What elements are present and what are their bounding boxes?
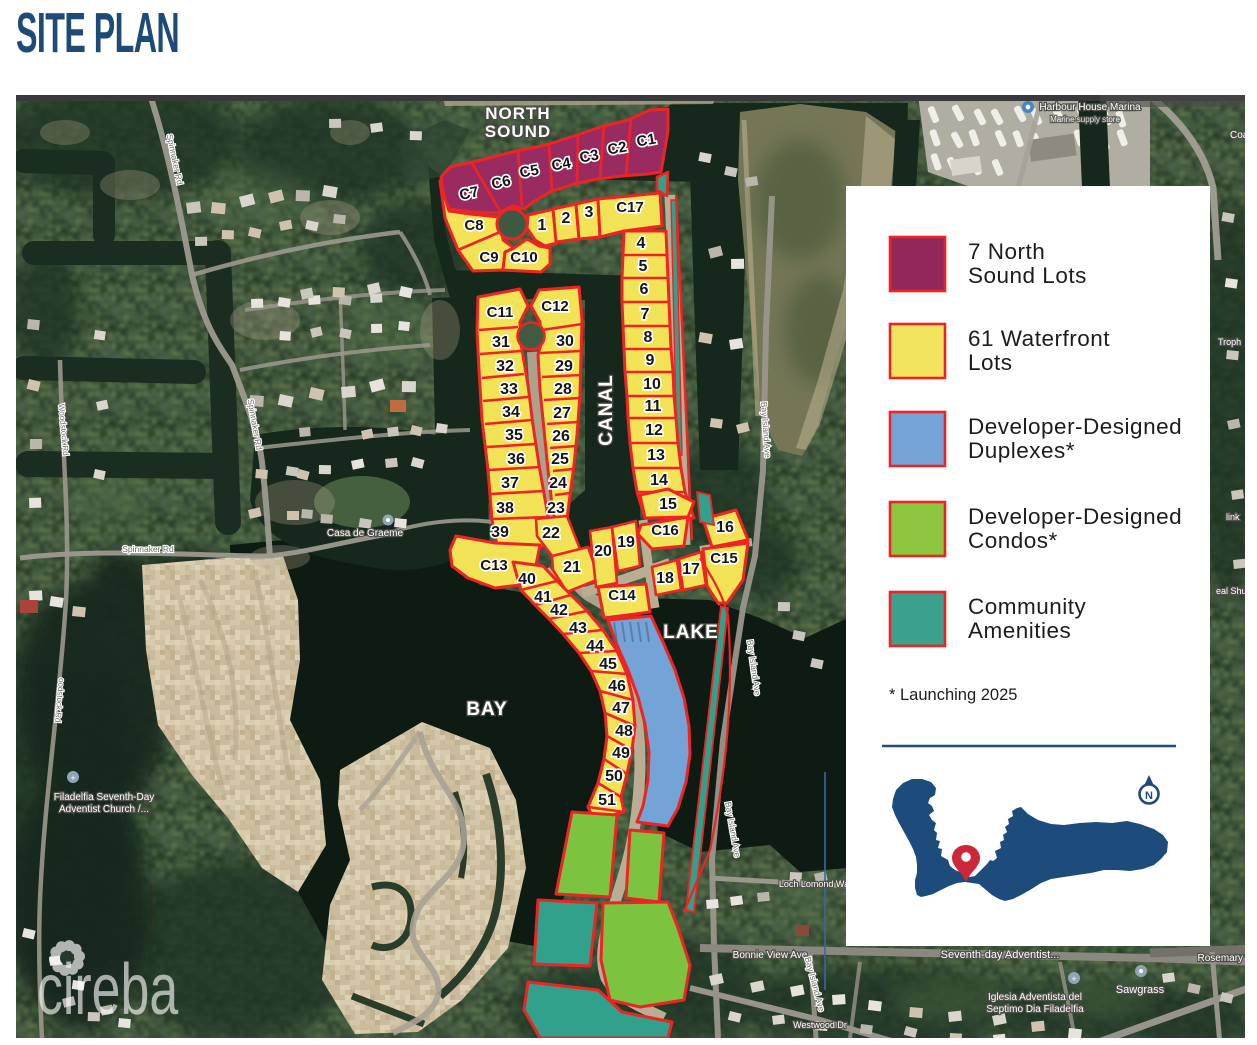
svg-text:33: 33 (500, 381, 518, 398)
svg-text:C16: C16 (651, 522, 679, 539)
svg-text:C9: C9 (479, 249, 498, 266)
svg-text:Casa de Graeme: Casa de Graeme (327, 528, 404, 539)
svg-text:N: N (1145, 790, 1153, 802)
svg-text:50: 50 (605, 768, 623, 785)
svg-text:29: 29 (555, 358, 573, 375)
svg-text:Coas: Coas (1230, 130, 1253, 141)
svg-text:15: 15 (659, 496, 677, 513)
svg-text:Condos*: Condos* (968, 528, 1058, 553)
svg-text:link: link (1226, 512, 1240, 522)
svg-text:2: 2 (562, 210, 571, 227)
svg-text:10: 10 (643, 376, 661, 393)
svg-text:Developer-Designed: Developer-Designed (968, 414, 1182, 439)
svg-text:48: 48 (615, 723, 633, 740)
svg-text:12: 12 (645, 422, 663, 439)
svg-text:Marine supply store: Marine supply store (1050, 115, 1120, 124)
svg-text:14: 14 (650, 472, 668, 489)
svg-text:LAKE: LAKE (663, 622, 719, 643)
svg-text:Troph: Troph (1218, 337, 1241, 347)
svg-text:49: 49 (612, 745, 630, 762)
svg-text:Iglesia Adventista del: Iglesia Adventista del (988, 992, 1082, 1003)
svg-text:35: 35 (505, 427, 523, 444)
svg-text:21: 21 (563, 559, 581, 576)
svg-text:C5: C5 (518, 162, 540, 182)
svg-text:47: 47 (612, 700, 630, 717)
svg-text:40: 40 (518, 571, 536, 588)
svg-text:11: 11 (645, 398, 662, 415)
svg-text:BAY: BAY (466, 699, 507, 720)
svg-text:26: 26 (552, 428, 570, 445)
svg-text:20: 20 (594, 543, 612, 560)
svg-text:39: 39 (491, 524, 509, 541)
svg-text:C13: C13 (480, 557, 508, 574)
svg-text:Duplexes*: Duplexes* (968, 438, 1075, 463)
svg-text:C12: C12 (541, 298, 569, 315)
svg-text:Community: Community (968, 594, 1087, 619)
svg-text:46: 46 (608, 678, 626, 695)
svg-text:18: 18 (656, 570, 674, 587)
svg-text:C8: C8 (464, 217, 483, 234)
svg-text:22: 22 (542, 525, 560, 542)
svg-text:31: 31 (492, 334, 510, 351)
svg-text:42: 42 (550, 602, 568, 619)
svg-text:C17: C17 (616, 199, 644, 216)
svg-text:3: 3 (585, 204, 594, 221)
svg-text:23: 23 (547, 500, 565, 517)
svg-text:43: 43 (569, 620, 587, 637)
svg-text:19: 19 (617, 534, 635, 551)
svg-text:C4: C4 (550, 154, 572, 174)
svg-text:Loch Lomond Wa: Loch Lomond Wa (779, 879, 849, 889)
svg-text:cireba: cireba (37, 950, 178, 1030)
svg-text:8: 8 (644, 329, 653, 346)
svg-text:SOUND: SOUND (485, 122, 551, 141)
svg-text:Seventh-day Adventist...: Seventh-day Adventist... (941, 949, 1060, 961)
svg-text:* Launching 2025: * Launching 2025 (889, 686, 1017, 704)
svg-text:17: 17 (682, 561, 700, 578)
svg-text:7 North: 7 North (968, 239, 1045, 264)
svg-text:Sound Lots: Sound Lots (968, 263, 1087, 288)
svg-text:28: 28 (554, 381, 572, 398)
svg-text:25: 25 (551, 451, 569, 468)
svg-text:Filadelfia Seventh-Day: Filadelfia Seventh-Day (54, 792, 155, 803)
svg-text:27: 27 (553, 405, 571, 422)
svg-text:Septimo Dia Filadelfia: Septimo Dia Filadelfia (986, 1004, 1084, 1015)
svg-text:5: 5 (639, 258, 648, 275)
svg-text:eal Shu: eal Shu (1216, 586, 1247, 596)
svg-text:C2: C2 (606, 139, 628, 159)
svg-text:CANAL: CANAL (596, 374, 617, 446)
svg-text:+: + (70, 773, 75, 783)
svg-text:45: 45 (599, 656, 617, 673)
svg-text:Amenities: Amenities (968, 618, 1071, 643)
svg-text:Harbour House Marina: Harbour House Marina (1039, 102, 1141, 113)
svg-text:6: 6 (640, 281, 649, 298)
svg-text:Sawgrass: Sawgrass (1116, 984, 1165, 996)
svg-text:44: 44 (586, 638, 604, 655)
svg-text:C10: C10 (510, 249, 538, 266)
svg-text:36: 36 (507, 451, 525, 468)
svg-text:24: 24 (549, 475, 567, 492)
svg-text:34: 34 (502, 404, 520, 421)
svg-text:+: + (1071, 974, 1076, 984)
svg-text:Spinnaker Rd: Spinnaker Rd (122, 544, 174, 554)
svg-text:NORTH: NORTH (485, 104, 550, 123)
svg-text:9: 9 (646, 352, 655, 369)
svg-text:Developer-Designed: Developer-Designed (968, 504, 1182, 529)
svg-text:37: 37 (501, 475, 519, 492)
svg-text:C11: C11 (487, 304, 514, 321)
svg-text:Rosemary S: Rosemary S (1197, 953, 1252, 964)
svg-text:Westwood Dr: Westwood Dr (793, 1020, 847, 1030)
svg-text:C14: C14 (608, 587, 636, 604)
svg-text:30: 30 (556, 333, 574, 350)
svg-text:1: 1 (538, 217, 547, 234)
svg-text:61 Waterfront: 61 Waterfront (968, 326, 1110, 351)
svg-text:4: 4 (637, 235, 646, 252)
svg-text:Adventist Church /...: Adventist Church /... (59, 804, 149, 815)
svg-text:C1: C1 (635, 131, 657, 151)
svg-text:16: 16 (716, 519, 734, 536)
svg-text:38: 38 (496, 500, 514, 517)
svg-text:C3: C3 (578, 147, 600, 167)
svg-text:51: 51 (598, 792, 616, 809)
svg-text:13: 13 (647, 447, 665, 464)
svg-text:32: 32 (496, 358, 514, 375)
svg-text:Lots: Lots (968, 350, 1013, 375)
svg-text:Bonnie View Ave: Bonnie View Ave (733, 950, 808, 961)
svg-text:7: 7 (641, 306, 650, 323)
svg-text:C15: C15 (710, 550, 738, 567)
